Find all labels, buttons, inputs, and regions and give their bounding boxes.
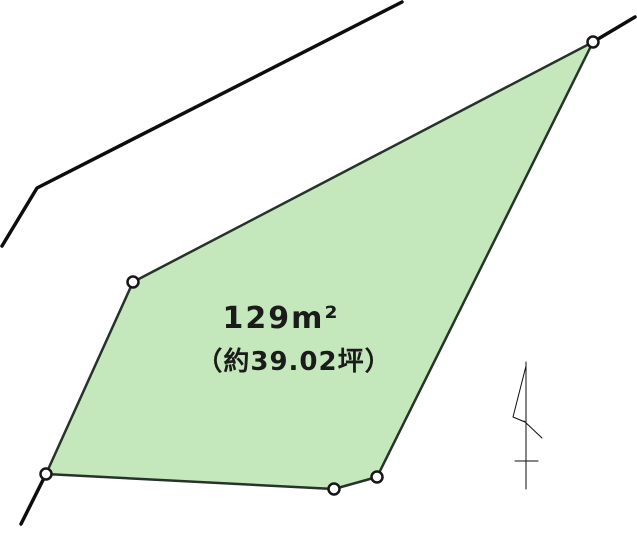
area-label-tsubo: （約39.02坪）	[196, 346, 391, 377]
area-label-m2: 129m²	[222, 301, 339, 336]
vertex-marker-left	[128, 277, 139, 288]
vertex-marker-bottom-right	[372, 472, 383, 483]
land-plot-diagram: 129m² （約39.02坪）	[0, 0, 637, 539]
vertex-marker-bottom-left	[41, 469, 52, 480]
vertex-marker-top-right	[588, 37, 599, 48]
plot-svg: 129m² （約39.02坪）	[0, 0, 637, 539]
vertex-marker-bottom-middle	[329, 484, 340, 495]
